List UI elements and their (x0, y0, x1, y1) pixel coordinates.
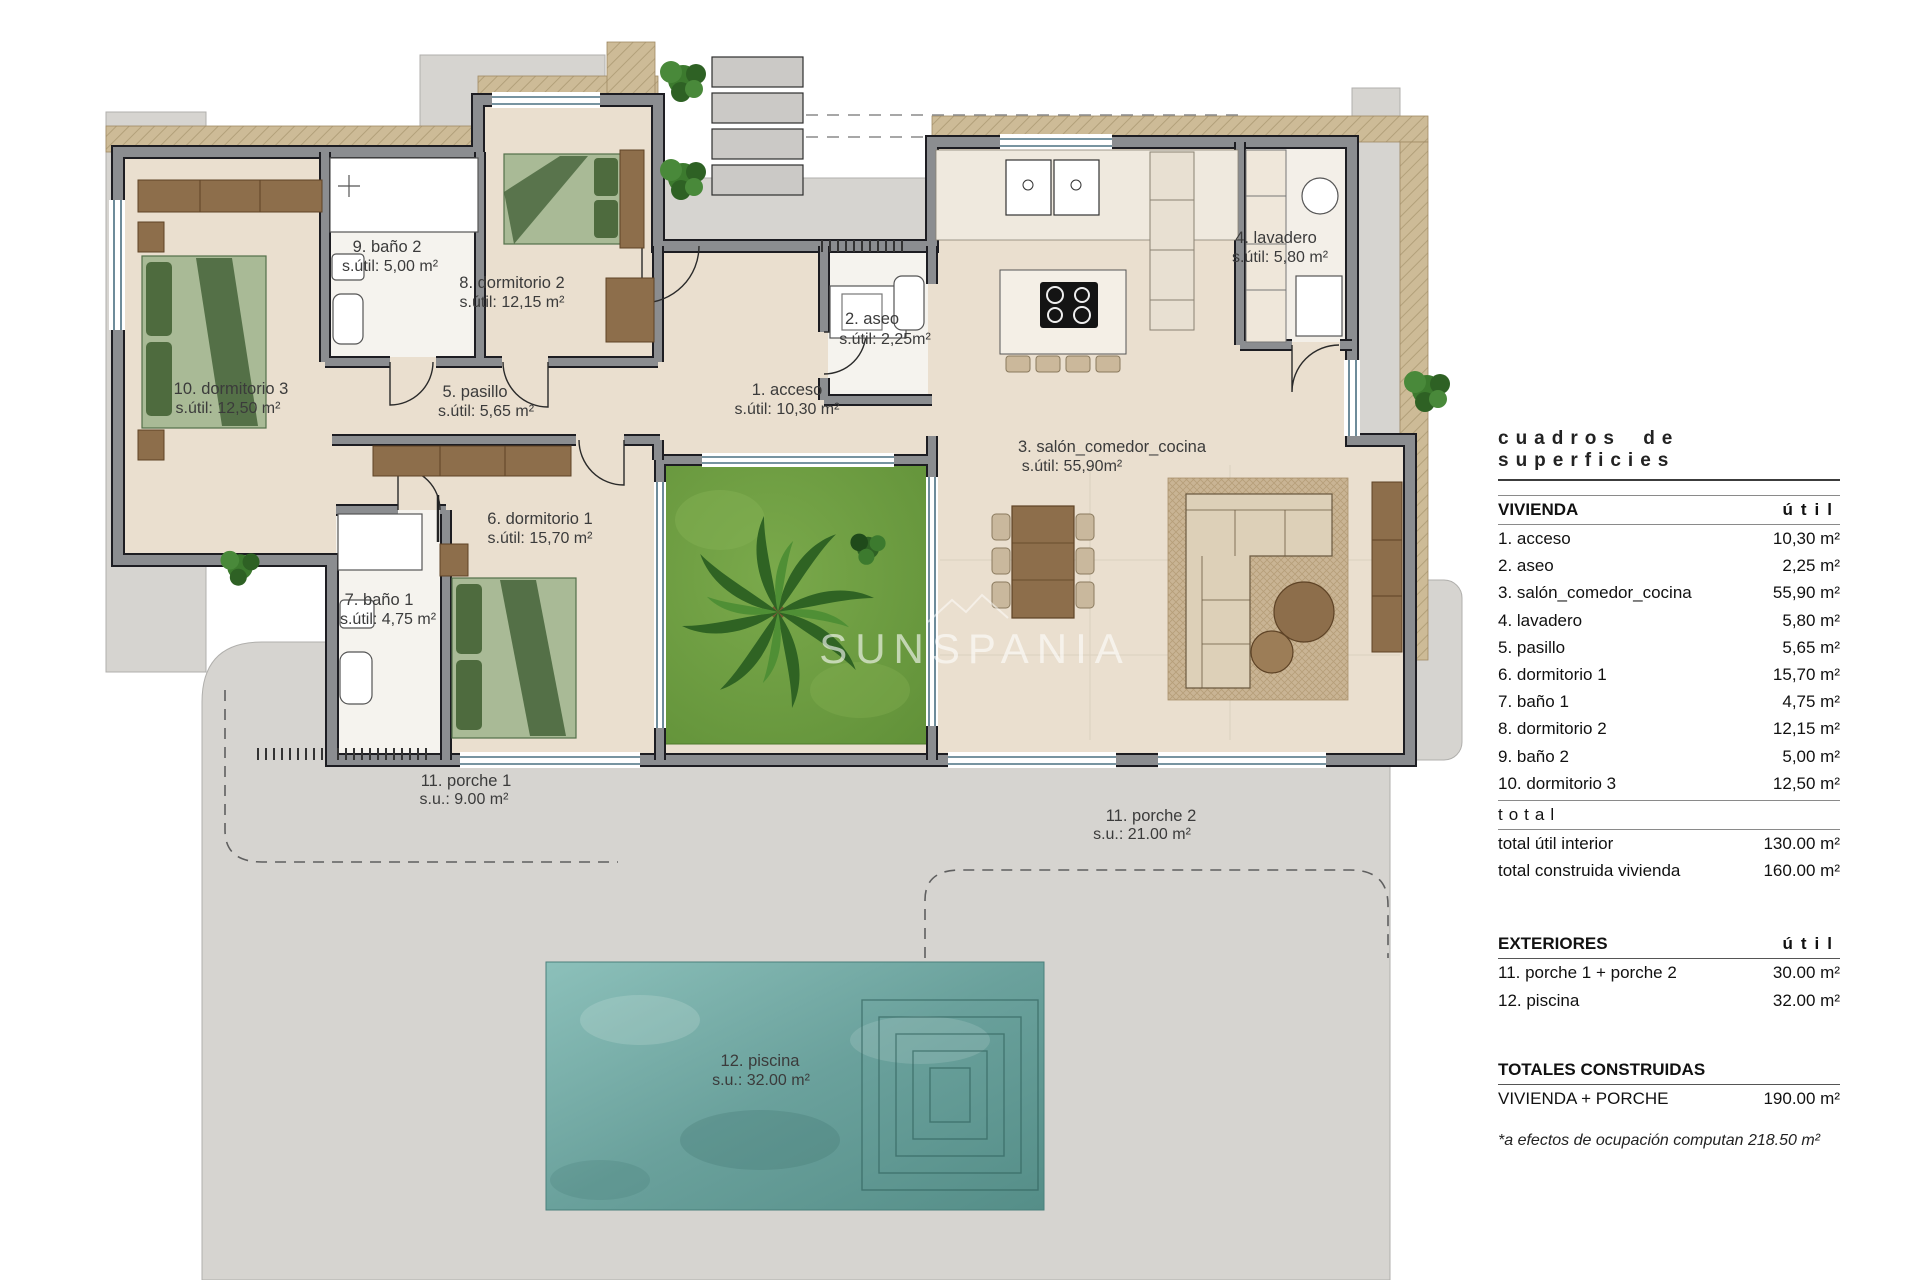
pillow (594, 158, 618, 196)
table-row: 1. acceso10,30 m² (1498, 525, 1840, 552)
surface-table: cuadros de superficies VIVIENDA útil 1. … (1498, 428, 1840, 1150)
svg-text:11. porche 2: 11. porche 2 (1106, 807, 1197, 825)
svg-text:s.útil: 5,65 m²: s.útil: 5,65 m² (438, 403, 535, 420)
table-row: 3. salón_comedor_cocina55,90 m² (1498, 579, 1840, 606)
svg-text:s.útil: 5,80 m²: s.útil: 5,80 m² (1232, 249, 1329, 266)
coffee-table (1274, 582, 1334, 642)
occupancy-note: *a efectos de ocupación computan 218.50 … (1498, 1132, 1840, 1150)
pillow (146, 342, 172, 416)
vivienda-header: VIVIENDA (1498, 500, 1578, 520)
table-row: 2. aseo2,25 m² (1498, 552, 1840, 579)
vivienda-header-row: VIVIENDA útil (1498, 496, 1840, 524)
table-row: 12. piscina32.00 m² (1498, 987, 1840, 1014)
exteriores-section: EXTERIORES útil 11. porche 1 + porche 23… (1498, 930, 1840, 1013)
svg-text:s.u.: 32.00 m²: s.u.: 32.00 m² (712, 1072, 810, 1089)
totales-header: TOTALES CONSTRUIDAS (1498, 1060, 1840, 1085)
exteriores-header-row: EXTERIORES útil (1498, 930, 1840, 959)
total-subheader: total (1498, 801, 1840, 829)
table-row: 7. baño 14,75 m² (1498, 688, 1840, 715)
table-row: 4. lavadero5,80 m² (1498, 607, 1840, 634)
table-row: VIVIENDA + PORCHE190.00 m² (1498, 1085, 1840, 1112)
washer (1296, 276, 1342, 336)
coffee-table (1251, 631, 1293, 673)
entry-step (712, 57, 803, 87)
table-title: cuadros de superficies (1498, 428, 1840, 481)
kitchen-sink (1006, 160, 1051, 215)
shower (330, 158, 478, 232)
shower (338, 514, 422, 570)
totales-section: TOTALES CONSTRUIDAS VIVIENDA + PORCHE190… (1498, 1060, 1840, 1112)
sideboard (1372, 482, 1402, 652)
table-row: total construida vivienda160.00 m² (1498, 857, 1840, 884)
table-row: 9. baño 25,00 m² (1498, 743, 1840, 770)
svg-text:4. lavadero: 4. lavadero (1235, 229, 1317, 247)
nightstand (138, 222, 164, 252)
svg-text:s.útil: 15,70 m²: s.útil: 15,70 m² (488, 530, 594, 547)
svg-text:s.útil: 2,25m²: s.útil: 2,25m² (839, 331, 931, 348)
dining-set (992, 506, 1094, 618)
svg-text:8. dormitorio 2: 8. dormitorio 2 (459, 274, 564, 292)
svg-text:2. aseo: 2. aseo (845, 310, 899, 328)
dining-table (1012, 506, 1074, 618)
watermark-text: SUNSPANIA (819, 625, 1131, 672)
svg-text:10. dormitorio 3: 10. dormitorio 3 (174, 380, 289, 398)
nightstand (138, 430, 164, 460)
svg-text:5. pasillo: 5. pasillo (442, 383, 507, 401)
util-column-header: útil (1783, 934, 1841, 954)
wardrobe (373, 446, 571, 476)
pillow (456, 660, 482, 730)
table-row: total útil interior130.00 m² (1498, 830, 1840, 857)
util-column-header: útil (1783, 500, 1841, 520)
svg-text:s.útil: 55,90m²: s.útil: 55,90m² (1022, 458, 1123, 475)
bed (504, 154, 622, 244)
table-row: 8. dormitorio 212,15 m² (1498, 715, 1840, 742)
svg-text:3. salón_comedor_cocina: 3. salón_comedor_cocina (1018, 438, 1207, 456)
svg-text:12. piscina: 12. piscina (721, 1052, 801, 1070)
toilet (340, 652, 372, 704)
kitchen-sink (1054, 160, 1099, 215)
svg-text:s.útil: 10,30 m²: s.útil: 10,30 m² (735, 401, 841, 418)
exteriores-header: EXTERIORES (1498, 934, 1608, 954)
entry-steps (712, 57, 803, 195)
svg-text:s.u.: 21.00 m²: s.u.: 21.00 m² (1093, 826, 1191, 843)
svg-text:s.útil: 12,15 m²: s.útil: 12,15 m² (460, 294, 566, 311)
svg-text:s.u.: 9.00 m²: s.u.: 9.00 m² (420, 791, 510, 808)
bed (452, 578, 576, 738)
tree-icon (660, 61, 706, 102)
svg-text:11. porche 1: 11. porche 1 (421, 772, 512, 790)
garden-courtyard (664, 462, 930, 744)
table-row: 6. dormitorio 115,70 m² (1498, 661, 1840, 688)
svg-text:6. dormitorio 1: 6. dormitorio 1 (487, 510, 592, 528)
tree-icon (220, 551, 259, 586)
entry-step (712, 129, 803, 159)
entry-step (712, 165, 803, 195)
svg-text:1. acceso: 1. acceso (752, 381, 823, 399)
headboard (620, 150, 644, 248)
svg-text:s.útil: 5,00 m²: s.útil: 5,00 m² (342, 258, 439, 275)
table-row: 10. dormitorio 312,50 m² (1498, 770, 1840, 797)
svg-text:s.útil: 4,75 m²: s.útil: 4,75 m² (340, 611, 437, 628)
pillow (456, 584, 482, 654)
desk (606, 278, 654, 342)
nightstand (440, 544, 468, 576)
table-row: 11. porche 1 + porche 230.00 m² (1498, 959, 1840, 986)
tall-cabinet (1150, 152, 1194, 330)
pillow (146, 262, 172, 336)
toilet (333, 294, 363, 344)
svg-text:7. baño 1: 7. baño 1 (345, 591, 414, 609)
svg-text:s.útil: 12,50 m²: s.útil: 12,50 m² (176, 400, 282, 417)
entry-step (712, 93, 803, 123)
round-sink (1302, 178, 1338, 214)
pillow (594, 200, 618, 238)
vivienda-section: VIVIENDA útil 1. acceso10,30 m² 2. aseo2… (1498, 495, 1840, 884)
table-row: 5. pasillo5,65 m² (1498, 634, 1840, 661)
wardrobe (138, 180, 322, 212)
svg-text:9. baño 2: 9. baño 2 (353, 238, 422, 256)
